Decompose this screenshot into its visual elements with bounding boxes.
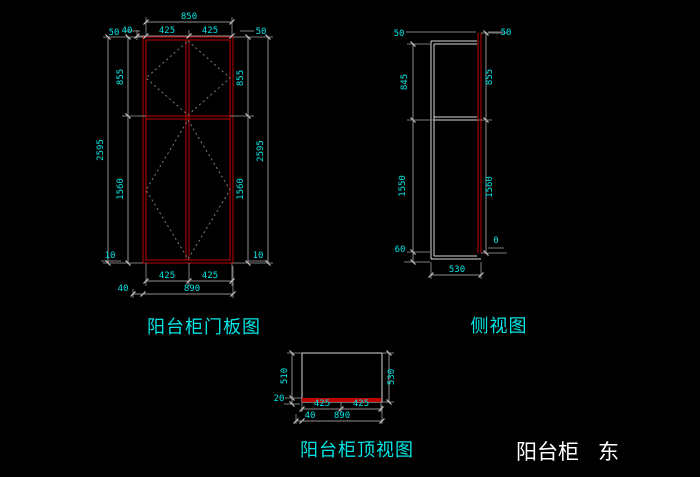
door-swing-dashed-marks <box>146 41 230 259</box>
door-panel-dimensions: 850 40 425 425 50 855 2595 1560 10 50 85… <box>96 12 273 298</box>
dim-door-left-upper: 855 <box>116 69 126 85</box>
dim-top-left-depth: 510 <box>280 368 290 384</box>
dim-door-top-half-right: 425 <box>202 26 218 36</box>
top-view-body <box>302 353 382 402</box>
side-view-body <box>431 41 481 259</box>
dim-side-bottom-total: 530 <box>449 265 465 275</box>
dim-top-bottom-half-right: 425 <box>353 399 369 409</box>
dim-side-gap-top-right: 50 <box>501 28 512 38</box>
dim-door-left-total: 2595 <box>96 139 106 161</box>
top-view-dimensions: 510 20 530 425 425 40 890 <box>274 353 397 424</box>
dim-door-bottom-total: 890 <box>184 284 200 294</box>
cad-canvas: 850 40 425 425 50 855 2595 1560 10 50 85… <box>0 0 700 477</box>
dim-top-right-depth: 530 <box>387 369 397 385</box>
door-panel-view-label: 阳台柜门板图 <box>147 317 261 338</box>
dim-door-top-offset: 40 <box>122 26 133 36</box>
dim-door-bottom-offset: 40 <box>118 284 129 294</box>
dim-door-left-gap-bottom: 10 <box>105 251 116 261</box>
top-view-label: 阳台柜顶视图 <box>300 440 414 461</box>
side-view-door-edge <box>478 33 481 253</box>
dim-side-right-bottom: 0 <box>493 236 498 246</box>
side-view: 50 50 845 1550 60 855 1560 0 530 侧视图 <box>394 28 528 337</box>
dim-top-bottom-total: 890 <box>334 411 350 421</box>
side-view-dimensions: 50 50 845 1550 60 855 1560 0 530 <box>394 28 512 279</box>
dim-door-top-total: 850 <box>181 12 197 22</box>
dim-door-right-gap-bottom: 10 <box>253 251 264 261</box>
dim-side-right-lower: 1560 <box>485 176 495 198</box>
dim-side-gap-top-left: 50 <box>394 29 405 39</box>
top-view: 510 20 530 425 425 40 890 阳台柜顶视图 <box>274 353 414 461</box>
dim-top-bottom-half-left: 425 <box>314 399 330 409</box>
dim-door-right-lower: 1560 <box>236 178 246 200</box>
dim-door-bottom-half-right: 425 <box>202 271 218 281</box>
dim-side-left-upper: 845 <box>400 74 410 90</box>
dim-side-right-upper: 855 <box>485 69 495 85</box>
door-panel-frame <box>143 37 233 263</box>
dim-door-right-gap-top: 50 <box>256 27 267 37</box>
dim-door-left-gap-top: 50 <box>109 28 120 38</box>
dim-door-left-lower: 1560 <box>116 178 126 200</box>
dim-door-top-half-left: 425 <box>159 26 175 36</box>
dim-top-left-front: 20 <box>274 394 285 404</box>
drawing-title-suffix: 东 <box>598 440 619 464</box>
dim-door-right-upper: 855 <box>236 70 246 86</box>
drawing-title-main: 阳台柜 <box>516 440 579 464</box>
side-view-label: 侧视图 <box>471 316 528 337</box>
dim-door-bottom-half-left: 425 <box>159 271 175 281</box>
door-panel-view: 850 40 425 425 50 855 2595 1560 10 50 85… <box>96 12 273 338</box>
dim-door-right-total: 2595 <box>256 140 266 162</box>
dim-side-left-bottom: 60 <box>395 245 406 255</box>
drawing-title: 阳台柜 东 <box>516 440 619 464</box>
dim-side-left-lower: 1550 <box>398 175 408 197</box>
dim-top-bottom-offset: 40 <box>305 411 316 421</box>
